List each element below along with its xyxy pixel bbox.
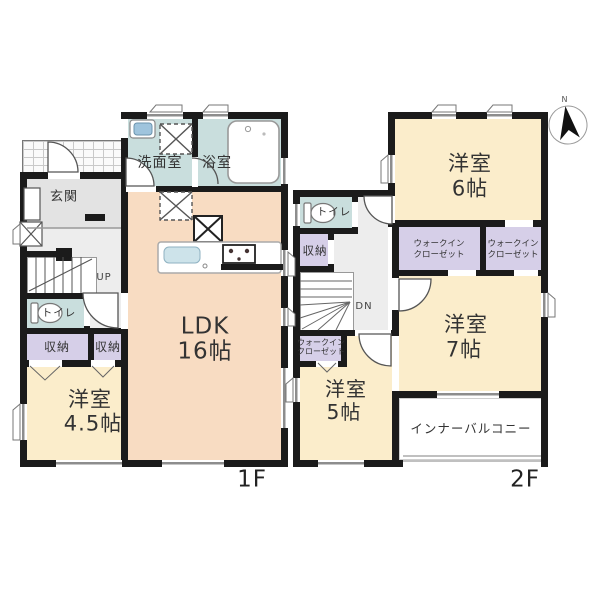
- balcony-open-edge: [403, 456, 541, 461]
- wic-c-label-2: クローゼット: [297, 348, 345, 356]
- inner-balcony-label: インナーバルコニー: [410, 423, 531, 436]
- kitchen-counter: [158, 242, 283, 273]
- bedroom7-size-label: 7帖: [446, 340, 482, 361]
- bedroom5-size-label: 5帖: [327, 402, 362, 422]
- washroom-label: 洗面室: [138, 156, 183, 170]
- bedroom6-door-arc: [364, 196, 392, 224]
- north-arrow-icon: [547, 104, 590, 147]
- wic-b-label-1: ウォークイン: [487, 240, 538, 249]
- wic-b-label-2: クローゼット: [487, 251, 538, 260]
- bedroom45-label: 洋室: [68, 390, 112, 411]
- bedroom7-label: 洋室: [444, 315, 488, 336]
- bedroom6-label: 洋室: [448, 154, 492, 175]
- entrance-x-box: [20, 188, 42, 246]
- closet-door-mark: [30, 366, 60, 380]
- toilet-1f-label: トイレ: [42, 308, 77, 319]
- bedroom5-door-arc: [359, 334, 391, 366]
- stairs-dn-icon: [300, 281, 352, 330]
- stairs-up-icon: [29, 257, 92, 293]
- floor-plan-canvas: 玄関 洗面室 浴室 LDK 16帖 UP トイレ 収納 収納 洋室 4.5帖 1…: [0, 0, 600, 600]
- entrance-label: 玄関: [50, 191, 78, 204]
- void-x-box-dashed: [160, 124, 192, 220]
- stairs-dn-label: DN: [355, 302, 372, 312]
- floorplan-vector-details: [0, 0, 600, 600]
- void-x-box-solid: [194, 216, 222, 242]
- washbasin-icon: [130, 120, 155, 138]
- wic-a-label-2: クローゼット: [413, 251, 464, 260]
- floor1-label: 1F: [237, 469, 267, 492]
- ldk-door-arc: [83, 293, 118, 328]
- wic-c-label-1: ウォークイン: [297, 339, 345, 347]
- ldk-label: LDK: [181, 316, 230, 339]
- bedroom7-door-arc: [399, 279, 431, 311]
- storage-right-label: 収納: [95, 341, 121, 353]
- closet-door-mark: [318, 363, 336, 372]
- north-label: N: [562, 96, 569, 104]
- ldk-size-label: 16帖: [177, 341, 232, 364]
- closet-door-mark: [92, 366, 114, 377]
- bedroom6-size-label: 6帖: [452, 179, 488, 200]
- bedroom5-label: 洋室: [325, 379, 367, 399]
- bathroom-label: 浴室: [202, 156, 232, 170]
- storage-2f-label: 収納: [303, 245, 328, 257]
- shoe-cabinet: [24, 188, 40, 220]
- toilet-2f-label: トイレ: [317, 207, 352, 218]
- front-door-arc: [48, 142, 78, 172]
- storage-left-label: 収納: [44, 341, 70, 353]
- floor2-label: 2F: [510, 469, 540, 492]
- wic-a-label-1: ウォークイン: [413, 240, 464, 249]
- kitchen-sink: [164, 247, 200, 263]
- bathtub-icon: [228, 121, 279, 183]
- stairs-up-label: UP: [96, 273, 111, 283]
- bedroom45-size-label: 4.5帖: [64, 414, 122, 435]
